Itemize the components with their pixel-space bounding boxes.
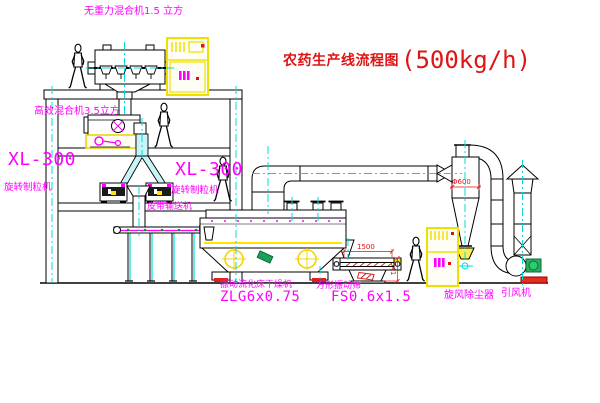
control-cabinet-top: [167, 38, 208, 95]
motor-symbol: [434, 258, 445, 267]
label-gravityless-mixer: 无重力混合机1.5 立方: [84, 7, 183, 17]
diagram-title: 农药生产线流程图 (500kg/h): [283, 46, 531, 74]
label-granulator-left-name: 旋转制粒机: [4, 183, 52, 193]
label-dryer-model: ZLG6x0.75: [220, 290, 300, 304]
label-high-efficiency-mixer: 高效混合机3.5立方: [34, 107, 120, 117]
label-fan: 引风机: [501, 289, 531, 299]
diagram-title-capacity: (500kg/h): [401, 46, 531, 74]
dim-screen-length: 1500: [357, 243, 375, 251]
cad-drawing-canvas: 农药生产线流程图 (500kg/h) 无重力混合机1.5 立方 高效混合机3.5…: [0, 0, 600, 403]
label-granulator-right-name: 旋转制粒机: [171, 186, 219, 196]
label-belt-conveyor: 皮带输送机: [147, 203, 192, 212]
gravityless-mixer-drawing: [88, 45, 172, 115]
exhaust-duct: [252, 165, 452, 210]
diagram-title-cn: 农药生产线流程图: [283, 50, 399, 70]
motor-symbol: [179, 71, 190, 80]
belt-conveyor-drawing: [114, 225, 207, 281]
dim-screen-height: 541: [389, 262, 397, 275]
label-cyclone: 旋风除尘器: [444, 291, 494, 301]
dim-cyclone-diameter: Φ600: [452, 178, 471, 186]
stack-and-fan-drawing: [506, 161, 547, 283]
label-granulator-left-model: XL-300: [8, 151, 76, 169]
label-screen-model: FS0.6x1.5: [331, 290, 411, 304]
granulator-left-drawing: [100, 183, 127, 203]
fluid-bed-dryer-drawing: [200, 202, 354, 283]
label-granulator-right-model: XL-300: [175, 161, 243, 179]
control-cabinet-right: [427, 228, 458, 286]
